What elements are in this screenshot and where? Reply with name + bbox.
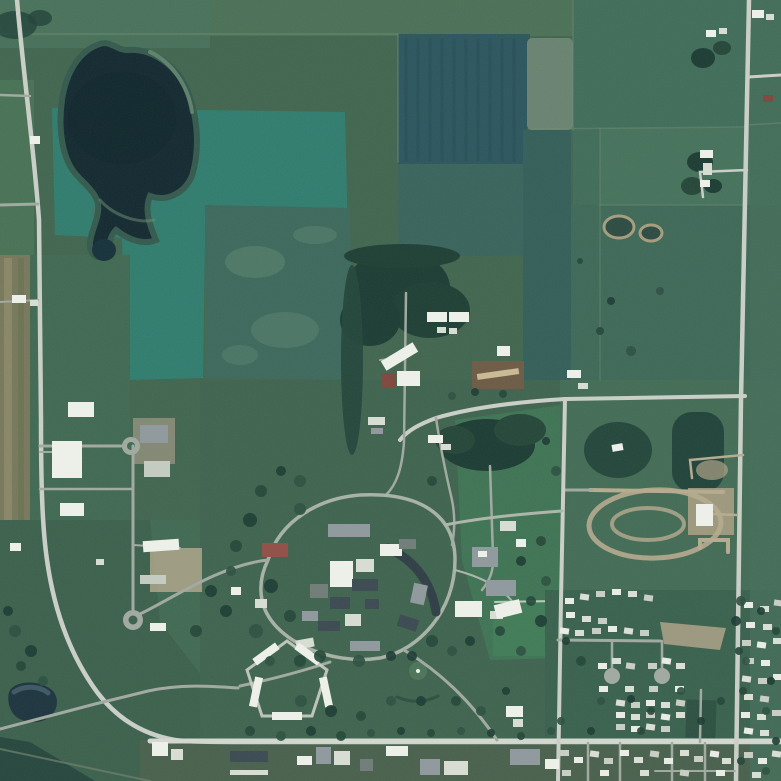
aerial-photo-canvas [0,0,781,781]
aerial-photograph [0,0,781,781]
photo-grain-overlay [0,0,781,781]
